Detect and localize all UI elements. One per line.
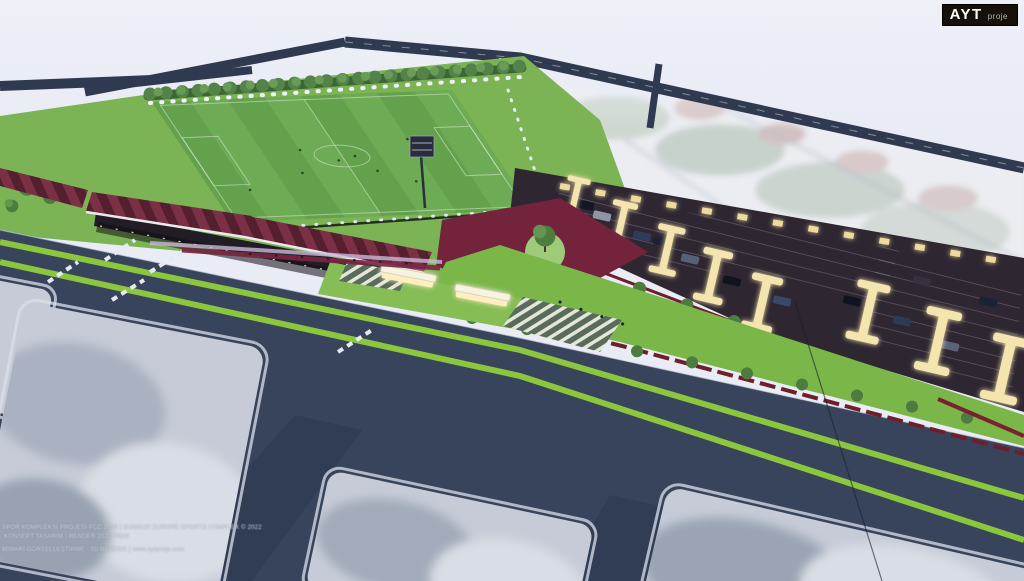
- caption-line-1: SPOR KOMPLEKSİ PROJESİ FCC 2022 | SUNGUR…: [2, 525, 262, 531]
- render-canvas: AYT proje SPOR KOMPLEKSİ PROJESİ FCC 202…: [0, 0, 1024, 581]
- caption-line-2: KONSEPT TASARIM | RENDER 2022 VIEW: [4, 534, 129, 540]
- caption-line-3: MİMARİ GÖRSELLEŞTİRME - 3D RENDER | www.…: [2, 547, 184, 553]
- site-render-graphic: [0, 0, 1024, 581]
- logo-text: AYT: [950, 7, 983, 22]
- logo-subtext: proje: [988, 13, 1008, 21]
- logo-aytproje: AYT proje: [942, 4, 1018, 26]
